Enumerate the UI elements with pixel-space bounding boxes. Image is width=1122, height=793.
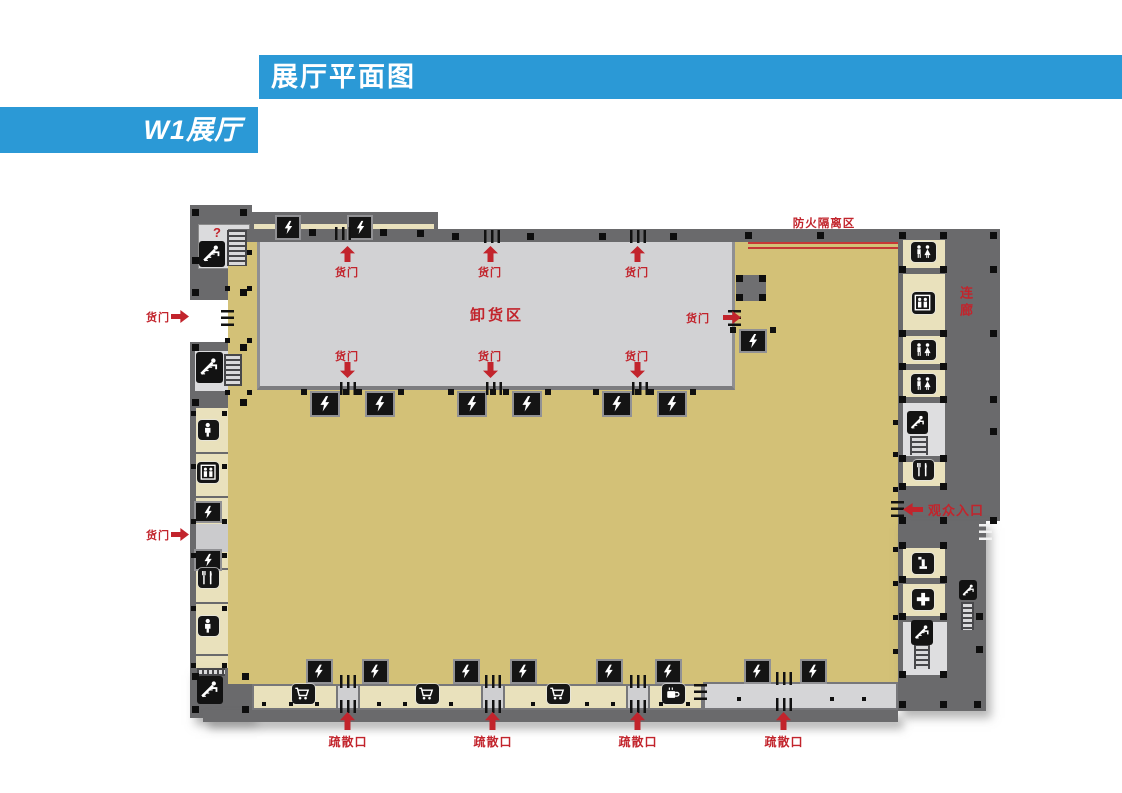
column-pillar <box>611 702 615 706</box>
fire-isolation-line <box>748 242 898 244</box>
stairs-icon <box>224 354 242 386</box>
electrical-panel-icon <box>275 215 301 240</box>
stairs-icon <box>961 602 974 630</box>
unloading-area-label: 卸货区 <box>470 304 524 325</box>
column-pillar <box>222 411 227 416</box>
cargo-door-label: 货门 <box>146 527 170 543</box>
column-pillar <box>417 230 424 237</box>
column-pillar <box>940 266 947 273</box>
column-pillar <box>759 275 766 282</box>
column-pillar <box>242 706 249 713</box>
column-pillar <box>940 576 947 583</box>
column-pillar <box>240 289 247 296</box>
column-pillar <box>192 209 199 216</box>
corridor-label: 连廊 <box>956 286 975 320</box>
column-pillar <box>222 606 227 611</box>
column-pillar <box>191 553 196 558</box>
lightning-bolt-icon <box>601 663 617 680</box>
toilet-icon <box>198 616 219 636</box>
shop-cart-icon-glyph <box>418 686 435 702</box>
column-pillar <box>990 330 997 337</box>
room-divider <box>196 496 228 498</box>
column-pillar <box>192 257 199 264</box>
column-pillar <box>990 396 997 403</box>
evacuation-exit-label: 疏散口 <box>328 733 367 750</box>
column-pillar <box>449 702 453 706</box>
column-pillar <box>192 289 199 296</box>
evacuation-exit-label: 疏散口 <box>473 733 512 750</box>
lightning-bolt-icon <box>463 395 481 413</box>
door-symbol <box>630 230 647 243</box>
column-pillar <box>940 542 947 549</box>
room-divider <box>196 452 228 454</box>
first-aid-icon-glyph <box>915 591 931 607</box>
cargo-door-label: 货门 <box>478 348 502 364</box>
door-symbol <box>340 700 357 713</box>
column-pillar <box>899 576 906 583</box>
cargo-door-label: 货门 <box>478 264 502 280</box>
column-pillar <box>247 286 252 291</box>
column-pillar <box>974 701 981 708</box>
column-pillar <box>899 613 906 620</box>
column-pillar <box>899 483 906 490</box>
room-divider <box>196 602 228 604</box>
column-pillar <box>899 330 906 337</box>
restaurant-icon <box>913 460 934 480</box>
column-pillar <box>531 702 535 706</box>
column-pillar <box>893 487 898 492</box>
column-pillar <box>225 286 230 291</box>
room-divider <box>196 654 228 656</box>
column-pillar <box>817 232 824 239</box>
information-mark: ? <box>213 225 222 240</box>
elevator-icon <box>197 462 219 483</box>
door-symbol <box>979 523 992 540</box>
lightning-bolt-icon <box>805 663 821 680</box>
floor-plan: ? 货门 货门 货门 货门 货门 货门 货门 货门 货门 卸货区 防火隔离区 连… <box>0 0 1122 793</box>
wall-stud <box>448 389 454 395</box>
electrical-panel-icon <box>453 659 480 684</box>
escalator-icon <box>911 620 933 645</box>
lightning-bolt-icon <box>749 663 765 680</box>
column-pillar <box>893 452 898 457</box>
elevator-icon-glyph <box>914 294 931 311</box>
lightning-bolt-icon <box>371 395 389 413</box>
cafe-icon-glyph <box>664 686 681 702</box>
restaurant-icon <box>198 568 219 588</box>
column-pillar <box>222 519 227 524</box>
cargo-door-label: 货门 <box>686 310 710 326</box>
column-pillar <box>377 702 381 706</box>
electrical-panel-icon <box>306 659 333 684</box>
column-pillar <box>686 702 690 706</box>
column-pillar <box>452 233 459 240</box>
column-pillar <box>191 519 196 524</box>
wall-stud <box>730 327 736 333</box>
shop-cart-icon <box>292 684 315 704</box>
stairs-icon <box>914 644 930 669</box>
bottom-outer-wall <box>203 710 898 722</box>
electrical-panel-icon <box>512 391 542 417</box>
door-symbol <box>340 382 357 395</box>
door-symbol <box>776 672 793 685</box>
cargo-door-label: 货门 <box>335 264 359 280</box>
lightning-bolt-icon <box>518 395 536 413</box>
wall-stud <box>545 389 551 395</box>
wall-stud <box>593 389 599 395</box>
elevator-icon-glyph <box>200 464 216 480</box>
cafe-icon <box>662 684 685 704</box>
column-pillar <box>659 702 663 706</box>
column-pillar <box>899 232 906 239</box>
column-pillar <box>940 232 947 239</box>
shop-cart-icon <box>416 684 439 704</box>
wall-stud <box>770 327 776 333</box>
column-pillar <box>309 229 316 236</box>
column-pillar <box>940 613 947 620</box>
column-pillar <box>192 344 199 351</box>
column-pillar <box>262 702 266 706</box>
column-pillar <box>222 464 227 469</box>
lightning-bolt-icon <box>660 663 676 680</box>
column-pillar <box>242 673 249 680</box>
wall-stud <box>301 389 307 395</box>
door-symbol <box>694 683 707 700</box>
shop-cart-icon-glyph <box>549 686 566 702</box>
lightning-bolt-icon <box>745 333 761 349</box>
column-pillar <box>191 464 196 469</box>
column-pillar <box>585 702 589 706</box>
door-symbol <box>630 700 647 713</box>
column-pillar <box>225 390 230 395</box>
evacuation-exit-label: 疏散口 <box>618 733 657 750</box>
column-pillar <box>899 542 906 549</box>
restroom-icon-glyph <box>914 342 933 358</box>
lightning-bolt-icon <box>316 395 334 413</box>
fire-isolation-label: 防火隔离区 <box>793 215 856 231</box>
column-pillar <box>670 233 677 240</box>
lightning-bolt-icon <box>311 663 327 680</box>
column-pillar <box>940 396 947 403</box>
electrical-panel-icon <box>194 501 222 523</box>
column-pillar <box>940 701 947 708</box>
lightning-bolt-icon <box>367 663 383 680</box>
restroom-icon-glyph <box>914 244 933 260</box>
escalator-figure-icon <box>913 622 931 643</box>
cargo-door-label: 货门 <box>335 348 359 364</box>
lightning-bolt-icon <box>458 663 474 680</box>
evacuation-exit-label: 疏散口 <box>764 733 803 750</box>
escalator-icon <box>907 411 928 434</box>
column-pillar <box>240 344 247 351</box>
column-pillar <box>940 483 947 490</box>
escalator-icon <box>199 241 225 267</box>
lightning-bolt-icon <box>281 219 296 236</box>
column-pillar <box>940 455 947 462</box>
column-pillar <box>192 399 199 406</box>
column-pillar <box>240 399 247 406</box>
cargo-door-arrow <box>171 310 189 323</box>
column-pillar <box>862 697 866 701</box>
electrical-panel-icon <box>596 659 623 684</box>
column-pillar <box>191 606 196 611</box>
electrical-panel-icon <box>457 391 487 417</box>
escalator-figure-icon <box>961 582 976 599</box>
restaurant-icon-glyph <box>200 570 216 586</box>
column-pillar <box>736 294 743 301</box>
column-pillar <box>745 232 752 239</box>
column-pillar <box>380 229 387 236</box>
door-symbol <box>891 500 904 517</box>
column-pillar <box>940 671 947 678</box>
column-pillar <box>737 697 741 701</box>
left-cargo-door-corridor <box>196 524 228 552</box>
wall-stud <box>503 389 509 395</box>
lightning-bolt-icon <box>200 553 216 567</box>
drinking-water-icon <box>912 553 934 574</box>
column-pillar <box>976 646 983 653</box>
column-pillar <box>247 250 252 255</box>
column-pillar <box>893 547 898 552</box>
restroom-icon <box>911 242 936 262</box>
column-pillar <box>289 702 293 706</box>
column-pillar <box>893 649 898 654</box>
column-pillar <box>240 209 247 216</box>
column-pillar <box>899 266 906 273</box>
electrical-panel-icon <box>800 659 827 684</box>
cargo-door-arrow <box>171 528 189 541</box>
column-pillar <box>247 338 252 343</box>
electrical-panel-icon <box>365 391 395 417</box>
door-symbol <box>630 675 647 688</box>
electrical-panel-icon <box>739 329 767 353</box>
door-symbol <box>632 382 649 395</box>
electrical-panel-icon <box>310 391 340 417</box>
escalator-figure-icon <box>198 354 220 380</box>
column-pillar <box>976 613 983 620</box>
column-pillar <box>899 671 906 678</box>
column-pillar <box>940 330 947 337</box>
escalator-icon <box>196 352 223 383</box>
column-pillar <box>222 553 227 558</box>
door-symbol <box>484 230 501 243</box>
column-pillar <box>990 232 997 239</box>
column-pillar <box>990 517 997 524</box>
electrical-panel-icon <box>655 659 682 684</box>
column-pillar <box>899 396 906 403</box>
cargo-door-label: 货门 <box>146 309 170 325</box>
column-pillar <box>893 581 898 586</box>
electrical-panel-icon <box>362 659 389 684</box>
column-pillar <box>403 702 407 706</box>
drinking-water-icon-glyph <box>915 555 931 571</box>
column-pillar <box>736 275 743 282</box>
lightning-bolt-icon <box>608 395 626 413</box>
door-symbol <box>486 382 503 395</box>
electrical-panel-icon <box>657 391 687 417</box>
first-aid-icon <box>912 589 934 610</box>
bottom-gray-corridor <box>703 682 898 710</box>
wall-stud <box>398 389 404 395</box>
toilet-icon-glyph <box>200 618 216 634</box>
column-pillar <box>990 266 997 273</box>
column-pillar <box>899 363 906 370</box>
column-pillar <box>225 338 230 343</box>
column-pillar <box>192 673 199 680</box>
escalator-figure-icon <box>199 678 220 702</box>
electrical-panel-icon <box>510 659 537 684</box>
column-pillar <box>247 390 252 395</box>
column-pillar <box>191 411 196 416</box>
column-pillar <box>830 697 834 701</box>
column-pillar <box>527 233 534 240</box>
door-symbol <box>340 675 357 688</box>
exhibition-floor-plan-page: 展厅平面图 W1展厅 <box>0 0 1122 793</box>
door-symbol <box>335 227 352 240</box>
restaurant-icon-glyph <box>915 462 931 478</box>
lightning-bolt-icon <box>200 505 216 519</box>
electrical-panel-icon <box>602 391 632 417</box>
escalator-figure-icon <box>201 243 222 265</box>
lightning-bolt-icon <box>515 663 531 680</box>
escalator-figure-icon <box>909 413 926 433</box>
column-pillar <box>899 701 906 708</box>
electrical-panel-icon <box>744 659 771 684</box>
column-pillar <box>893 615 898 620</box>
column-pillar <box>940 363 947 370</box>
restroom-icon-glyph <box>914 376 933 392</box>
elevator-icon <box>912 292 935 314</box>
visitor-entrance-label: 观众入口 <box>928 500 984 519</box>
restroom-icon <box>911 340 936 360</box>
column-pillar <box>222 663 227 668</box>
door-symbol <box>776 698 793 711</box>
toilet-icon <box>198 420 219 440</box>
column-pillar <box>899 517 906 524</box>
cargo-door-label: 货门 <box>625 264 649 280</box>
lightning-bolt-icon <box>353 219 368 236</box>
door-symbol <box>221 309 234 326</box>
cargo-door-label: 货门 <box>625 348 649 364</box>
shop-cart-icon <box>547 684 570 704</box>
wall-stud <box>690 389 696 395</box>
column-pillar <box>192 706 199 713</box>
door-symbol <box>485 675 502 688</box>
escalator-icon <box>959 580 977 600</box>
shop-cart-icon-glyph <box>294 686 311 702</box>
column-pillar <box>893 420 898 425</box>
column-pillar <box>990 428 997 435</box>
column-pillar <box>759 294 766 301</box>
toilet-icon-glyph <box>200 422 216 438</box>
door-symbol <box>485 700 502 713</box>
stairs-icon <box>227 230 247 266</box>
column-pillar <box>899 455 906 462</box>
stairs-icon <box>910 436 928 455</box>
column-pillar <box>599 233 606 240</box>
restroom-icon <box>911 374 936 394</box>
column-pillar <box>315 702 319 706</box>
escalator-icon <box>197 676 223 704</box>
column-pillar <box>191 663 196 668</box>
lightning-bolt-icon <box>663 395 681 413</box>
fire-isolation-line <box>748 247 898 249</box>
stairs-icon <box>197 668 225 676</box>
